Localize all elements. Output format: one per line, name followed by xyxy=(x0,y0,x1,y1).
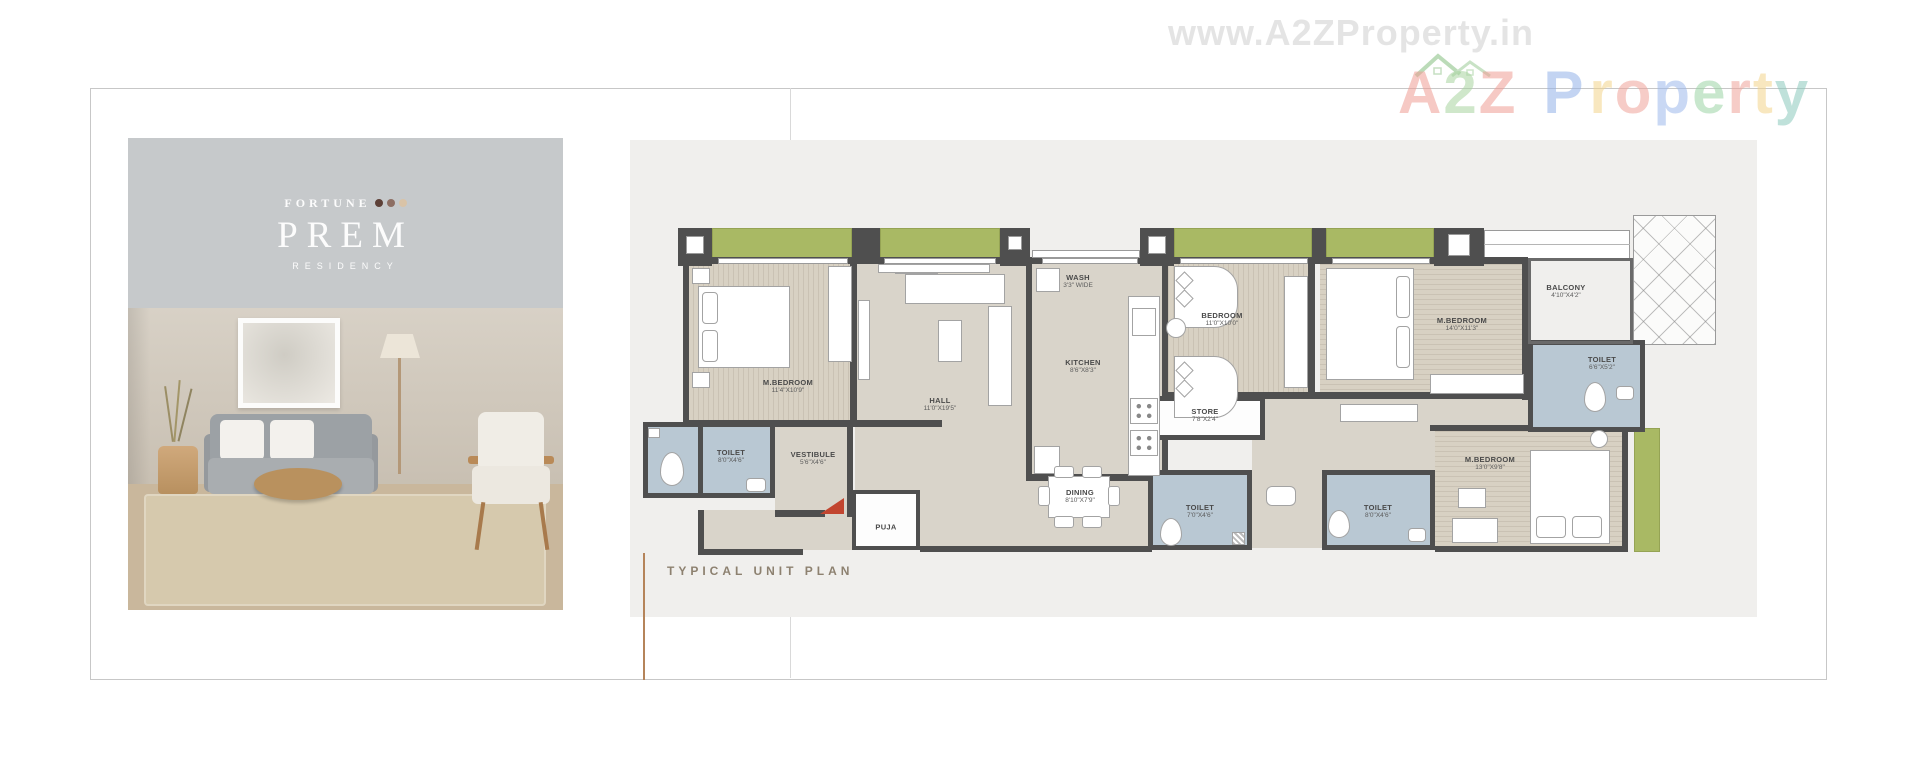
bedside-table xyxy=(692,372,710,388)
wall xyxy=(1032,546,1152,552)
room-balcony-right xyxy=(1528,258,1633,344)
photo-stump-table xyxy=(158,446,198,494)
pillow xyxy=(1536,516,1566,538)
watermark-letter: P xyxy=(1543,58,1589,127)
pillow xyxy=(702,292,718,324)
brand-logo: FORTUNE PREM RESIDENCY xyxy=(128,194,563,271)
brand-dot-3 xyxy=(399,199,407,207)
room-label-toilet-left: TOILET8'0"X4'6" xyxy=(717,448,745,464)
toilet-wc xyxy=(1328,510,1350,538)
room-puja xyxy=(852,490,920,550)
stool xyxy=(1166,318,1186,338)
photo-lamp-shade xyxy=(380,334,420,358)
wardrobe xyxy=(828,266,852,362)
watermark-letter: Z xyxy=(1479,58,1518,127)
wash-basin xyxy=(1266,486,1296,506)
column-duct xyxy=(1008,236,1022,250)
photo-armchair-seat xyxy=(472,466,550,504)
dining-chair xyxy=(1108,486,1120,506)
photo-wall-art xyxy=(238,318,340,408)
entrance-door-marker xyxy=(820,498,844,514)
watermark-letter: r xyxy=(1727,58,1752,127)
room-label-store: STORE7'8"X2'4" xyxy=(1191,407,1218,423)
side-cabinet xyxy=(988,306,1012,406)
brand-fortune-text: FORTUNE xyxy=(284,196,370,210)
photo-armchair-back xyxy=(478,412,544,472)
column-duct xyxy=(686,236,704,254)
window xyxy=(718,258,848,264)
kitchen-sink xyxy=(1132,308,1156,336)
room-label-dining: DINING8'10"X7'9" xyxy=(1065,488,1095,504)
stool xyxy=(1590,430,1608,448)
photo-plant-stem-3 xyxy=(177,389,192,442)
center-table xyxy=(938,320,962,362)
washing-machine xyxy=(1036,268,1060,292)
room-label-toilet-right: TOILET6'6"X5'2" xyxy=(1588,355,1616,371)
balcony-parapet xyxy=(1484,230,1630,260)
room-label-wash: WASH3'3" WIDE xyxy=(1063,273,1093,289)
parapet-line xyxy=(1484,244,1630,245)
dining-chair xyxy=(1082,516,1102,528)
watermark-letter: 2 xyxy=(1443,58,1478,127)
room-label-toilet-middle-1: TOILET7'0"X4'6" xyxy=(1186,503,1214,519)
room-label-bedroom-middle: BEDROOM11'0"X10'0" xyxy=(1201,311,1242,327)
photo-lamp-pole xyxy=(398,352,401,474)
page-fold-line-bottom xyxy=(790,617,791,678)
brochure-page: FORTUNE PREM RESIDENCY xyxy=(0,0,1920,784)
plan-caption: TYPICAL UNIT PLAN xyxy=(667,564,853,578)
watermark-logo: A2ZProperty xyxy=(1398,58,1810,127)
pillow xyxy=(702,330,718,362)
hall-sideboard xyxy=(878,264,990,273)
wardrobe xyxy=(1284,276,1308,388)
watermark-letter: p xyxy=(1653,58,1692,127)
room-label-toilet-middle-2: TOILET8'0"X4'6" xyxy=(1364,503,1392,519)
side-table xyxy=(1458,488,1486,508)
watermark-letter: A xyxy=(1398,58,1443,127)
dining-chair xyxy=(1038,486,1050,506)
wall xyxy=(1308,257,1315,399)
photo-rug xyxy=(144,494,546,606)
brand-photo-panel: FORTUNE PREM RESIDENCY xyxy=(128,138,563,610)
room-label-puja: PUJA xyxy=(875,523,896,532)
balcony-strip-2 xyxy=(880,228,1000,260)
bedside-table xyxy=(692,268,710,284)
room-label-master-bedroom-left: M.BEDROOM11'4"X10'9" xyxy=(763,378,813,394)
shelf xyxy=(648,428,660,438)
wall xyxy=(683,257,689,427)
dining-chair xyxy=(1054,516,1074,528)
pillow xyxy=(1572,516,1602,538)
watermark-letter: e xyxy=(1692,58,1727,127)
living-room-photo xyxy=(128,308,563,610)
window xyxy=(1332,258,1430,264)
watermark-letter: t xyxy=(1753,58,1775,127)
bench xyxy=(1452,518,1498,543)
wall xyxy=(1162,257,1168,481)
wash-basin xyxy=(1616,386,1634,400)
open-terrace-hatch xyxy=(1633,215,1716,345)
toilet-divider-wall xyxy=(698,427,703,493)
stove-burners xyxy=(1130,398,1158,424)
balcony-strip-right xyxy=(1634,428,1660,552)
watermark-letter: r xyxy=(1589,58,1614,127)
stove-burners xyxy=(1130,430,1158,456)
room-label-vestibule: VESTIBULE5'6"X4'6" xyxy=(791,450,836,466)
room-label-master-bedroom-bottom: M.BEDROOM13'0"X9'8" xyxy=(1465,455,1515,471)
wash-basin xyxy=(746,478,766,492)
toilet-wc xyxy=(1160,518,1182,546)
sofa xyxy=(905,274,1005,304)
column-duct xyxy=(1448,234,1470,256)
dining-chair xyxy=(1082,466,1102,478)
column-duct xyxy=(1148,236,1166,254)
dining-chair xyxy=(1054,466,1074,478)
brand-dot-1 xyxy=(375,199,383,207)
wash-ledge xyxy=(1032,250,1140,258)
pillow xyxy=(1396,326,1410,368)
wall xyxy=(775,510,825,517)
wall xyxy=(920,546,1032,552)
window xyxy=(1180,258,1308,264)
photo-sofa-pillow-1 xyxy=(220,420,264,460)
photo-sofa-pillow-2 xyxy=(270,420,314,460)
photo-plant-stem-1 xyxy=(164,386,174,442)
pillow xyxy=(1396,276,1410,318)
balcony-strip-3 xyxy=(1174,228,1312,260)
balcony-strip-4 xyxy=(1326,228,1434,260)
brand-header: FORTUNE PREM RESIDENCY xyxy=(128,138,563,308)
wall xyxy=(1026,257,1032,481)
brand-residency-text: RESIDENCY xyxy=(128,261,563,271)
balcony-strip-1 xyxy=(712,228,852,260)
window xyxy=(1042,258,1138,264)
shower-drain xyxy=(1232,532,1245,545)
watermark-url: www.A2ZProperty.in xyxy=(1168,12,1534,54)
brand-line1: FORTUNE xyxy=(128,194,563,212)
room-label-hall: HALL11'0"X19'5" xyxy=(924,396,957,412)
tv-unit xyxy=(858,300,870,380)
passage2b-floor xyxy=(1322,425,1435,472)
room-label-master-bedroom-right: M.BEDROOM14'0"X11'3" xyxy=(1437,316,1487,332)
wash-basin xyxy=(1408,528,1426,542)
caption-accent-line xyxy=(643,553,645,680)
watermark-letter: y xyxy=(1775,58,1810,127)
toilet-wc xyxy=(660,452,684,486)
wall xyxy=(1622,425,1628,552)
photo-coffee-table xyxy=(254,468,342,500)
room-label-kitchen: KITCHEN8'6"X8'3" xyxy=(1065,358,1100,374)
watermark-letter: o xyxy=(1615,58,1654,127)
toilet-wc xyxy=(1584,382,1606,412)
wall xyxy=(1435,546,1628,552)
wardrobe xyxy=(1430,374,1524,394)
room-label-balcony: BALCONY4'10"X4'2" xyxy=(1546,283,1585,299)
brand-dot-2 xyxy=(387,199,395,207)
wardrobe xyxy=(1340,404,1418,422)
wall xyxy=(698,549,803,555)
brand-name-text: PREM xyxy=(128,214,563,257)
page-fold-line-top xyxy=(790,88,791,140)
